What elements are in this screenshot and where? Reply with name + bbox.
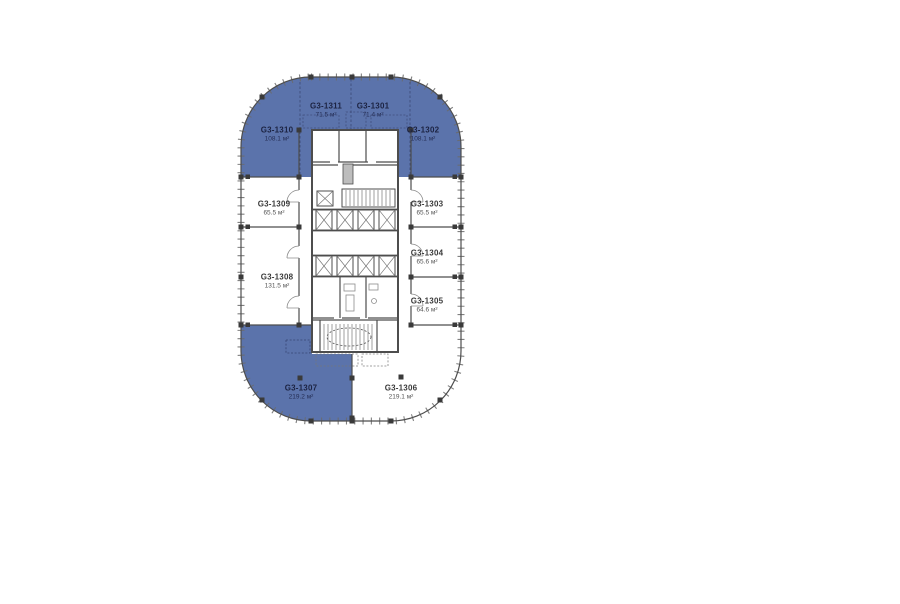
- room-id: G3-1306: [385, 383, 418, 393]
- stair-north: [342, 189, 395, 207]
- room-label-g3-1309[interactable]: G3-1309 65.5 м²: [258, 199, 291, 216]
- room-id: G3-1304: [411, 248, 444, 258]
- room-id: G3-1302: [407, 125, 440, 135]
- room-id: G3-1303: [411, 199, 444, 209]
- room-id: G3-1308: [261, 272, 294, 282]
- room-id: G3-1309: [258, 199, 291, 209]
- room-label-g3-1302[interactable]: G3-1302 108.1 м²: [407, 125, 440, 142]
- room-label-g3-1307[interactable]: G3-1307 219.2 м²: [285, 383, 318, 400]
- duct-shaft: [343, 164, 353, 184]
- room-area: 108.1 м²: [407, 135, 440, 143]
- room-label-g3-1308[interactable]: G3-1308 131.5 м²: [261, 272, 294, 289]
- room-area: 71.4 м²: [357, 111, 390, 119]
- room-label-g3-1304[interactable]: G3-1304 65.6 м²: [411, 248, 444, 265]
- room-area: 108.1 м²: [261, 135, 294, 143]
- room-id: G3-1305: [411, 296, 444, 306]
- room-label-g3-1303[interactable]: G3-1303 65.5 м²: [411, 199, 444, 216]
- room-label-g3-1301[interactable]: G3-1301 71.4 м²: [357, 101, 390, 118]
- room-id: G3-1310: [261, 125, 294, 135]
- room-label-g3-1311[interactable]: G3-1311 71.5 м²: [310, 101, 342, 118]
- floor-plan-drawing: [0, 0, 900, 604]
- room-area: 131.5 м²: [261, 282, 294, 290]
- room-area: 64.6 м²: [411, 306, 444, 314]
- room-id: G3-1307: [285, 383, 318, 393]
- room-label-g3-1306[interactable]: G3-1306 219.1 м²: [385, 383, 418, 400]
- room-area: 219.2 м²: [285, 393, 318, 401]
- room-id: G3-1311: [310, 101, 342, 111]
- room-id: G3-1301: [357, 101, 390, 111]
- room-area: 65.5 м²: [258, 209, 291, 217]
- room-label-g3-1305[interactable]: G3-1305 64.6 м²: [411, 296, 444, 313]
- room-area: 219.1 м²: [385, 393, 418, 401]
- room-area: 65.5 м²: [411, 209, 444, 217]
- building-core: [312, 130, 398, 352]
- room-area: 65.6 м²: [411, 258, 444, 266]
- room-label-g3-1310[interactable]: G3-1310 108.1 м²: [261, 125, 294, 142]
- room-area: 71.5 м²: [310, 111, 342, 119]
- floor-plan-canvas: G3-1301 71.4 м² G3-1302 108.1 м² G3-1303…: [0, 0, 900, 604]
